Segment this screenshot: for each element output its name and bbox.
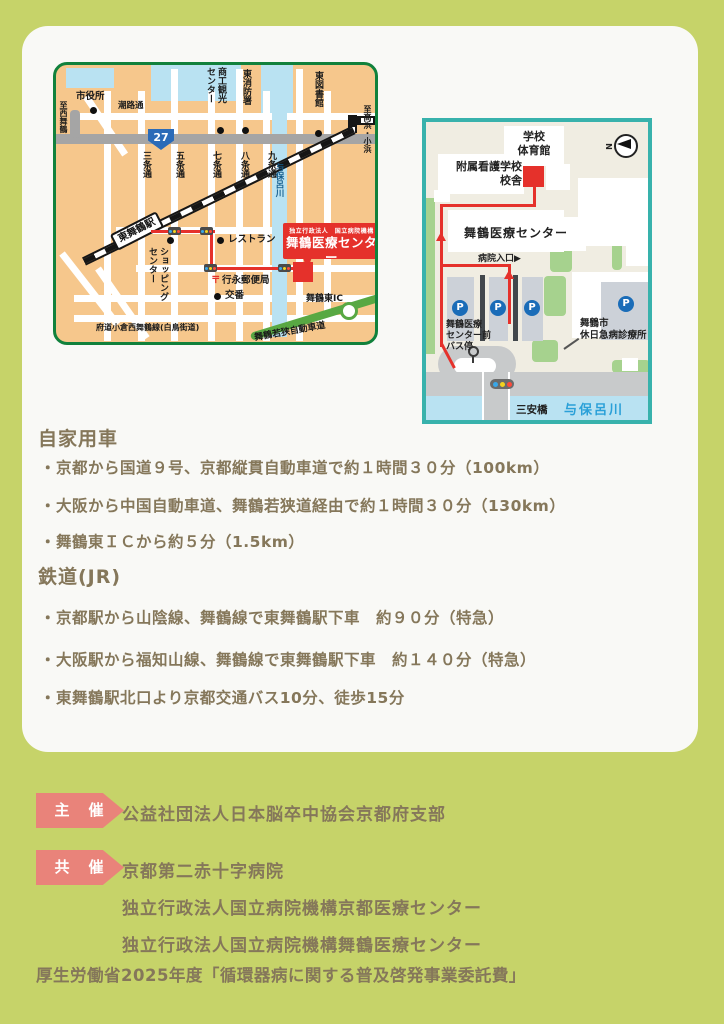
- parking-icon: P: [490, 300, 506, 316]
- compass-needle: [617, 139, 631, 149]
- car-heading: 自家用車: [38, 424, 118, 451]
- building: [622, 358, 638, 371]
- post-office-label: 行永郵便局: [222, 276, 270, 287]
- footer-note: 厚生労働省2025年度「循環器病に関する普及啓発事業委託費」: [36, 962, 526, 986]
- pref-road-label: 府道小倉西舞鶴線(白鳥街道): [96, 323, 199, 332]
- route-arrow-icon: [504, 270, 514, 279]
- cohost-name: 独立行政法人国立病院機構舞鶴医療センター: [122, 931, 482, 956]
- poi-dot-icon: [90, 107, 97, 114]
- building: [546, 164, 570, 190]
- traffic-signal-icon: [204, 264, 217, 272]
- host-name: 公益社団法人日本脳卒中協会京都府支部: [122, 800, 446, 825]
- parking-icon: P: [618, 296, 634, 312]
- river-label: 与保呂川: [564, 399, 624, 418]
- train-item: ・東舞鶴駅北口より京都交通バス10分、徒歩15分: [40, 686, 405, 708]
- library-label: 東図書館: [312, 71, 323, 119]
- ic-label: 舞鶴東IC: [306, 294, 343, 304]
- street: [208, 91, 215, 341]
- police-box-label: 交番: [225, 291, 244, 302]
- street: [263, 91, 270, 341]
- train-item: ・京都駅から山陰線、舞鶴線で東舞鶴駅下車 約９０分（特急）: [40, 606, 504, 628]
- car-item: ・大阪から中国自動車道、舞鶴若狭道経由で約１時間３０分（130km）: [40, 494, 565, 516]
- traffic-signal-icon: [278, 264, 291, 272]
- chamber-label: 商工観光センター: [204, 67, 226, 106]
- street: [104, 91, 111, 341]
- car-item: ・舞鶴東ＩＣから約５分（1.5km）: [40, 530, 304, 552]
- poi-dot-icon: [315, 130, 322, 137]
- nursing-school-label: 附属看護学校 校舎: [442, 160, 522, 188]
- shopping-center-label: ショッピングセンター: [146, 247, 168, 303]
- clinic-pointer-line: [563, 338, 579, 350]
- building: [578, 178, 648, 246]
- cohost-badge: 共 催: [36, 850, 124, 885]
- yohoro-river: [272, 95, 287, 337]
- host-badge: 主 催: [36, 793, 124, 828]
- hospital-entrance-label: 病院入口▶: [478, 251, 521, 264]
- traffic-signal-icon: [200, 227, 213, 235]
- water-area: [151, 65, 241, 101]
- street-name-label: 八条通: [238, 151, 249, 191]
- compass-n-label: N: [605, 143, 614, 150]
- building: [434, 190, 450, 202]
- street: [324, 91, 331, 315]
- city-hall-label: 市役所: [76, 92, 105, 103]
- fire-station-label: 東消防署: [240, 69, 251, 117]
- route-line: [440, 204, 536, 207]
- train-heading: 鉄道(JR): [38, 562, 121, 589]
- route-line: [440, 264, 510, 267]
- car-item: ・京都から国道９号、京都縦貫自動車道で約１時間３０分（100km）: [40, 456, 549, 478]
- bus-stop-label: 舞鶴医療 センター前 バス停: [446, 320, 491, 353]
- clinic-line1: 舞鶴市: [580, 318, 647, 330]
- poi-dot-icon: [217, 237, 224, 244]
- building: [626, 246, 648, 266]
- train-item: ・大阪駅から福知山線、舞鶴線で東舞鶴駅下車 約１４０分（特急）: [40, 648, 536, 670]
- nursing-school-line1: 附属看護学校: [442, 160, 522, 174]
- bus-stop-pole: [472, 355, 474, 363]
- nursing-school-line2: 校舎: [442, 174, 522, 188]
- clinic-label: 舞鶴市 休日急病診療所: [580, 318, 647, 342]
- cohost-name: 独立行政法人国立病院機構京都医療センター: [122, 894, 482, 919]
- route-line: [440, 204, 443, 347]
- street: [74, 113, 378, 120]
- cohost-name: 京都第二赤十字病院: [122, 857, 284, 882]
- medical-center-label: 舞鶴医療センター: [464, 224, 568, 241]
- compass-north-icon: N: [614, 134, 638, 158]
- shioji-street-label: 潮路通: [118, 102, 144, 112]
- to-west-label: 至西舞鶴: [58, 101, 69, 141]
- post-mark: 〒: [211, 276, 221, 287]
- street-name-label: 五条通: [173, 151, 184, 191]
- maizuru-higashi-ic-circle: [340, 302, 358, 320]
- green-patch: [544, 276, 566, 316]
- hospital-callout: 独立行政法人 国立病院機構 舞鶴医療センター: [283, 223, 378, 259]
- street-name-label: 三条通: [140, 151, 151, 191]
- hedge: [422, 198, 435, 354]
- restaurant-label: レストラン: [228, 235, 276, 246]
- clinic-line2: 休日急病診療所: [580, 330, 647, 342]
- traffic-signal-icon: [490, 379, 514, 389]
- campus-map: N P P P P 学校 体育館 附属看護学校 校舎 舞鶴医療センター 病院入口…: [422, 118, 652, 424]
- city-access-map: 27 舞鶴東IC 舞鶴若狭自動車道 東舞鶴駅 至西舞鶴 至高浜・小浜 市役所 潮…: [53, 62, 378, 345]
- green-patch: [532, 340, 558, 362]
- poi-dot-icon: [242, 127, 249, 134]
- route27-road: [70, 110, 80, 138]
- poi-dot-icon: [217, 127, 224, 134]
- callout-org-label: 独立行政法人 国立病院機構: [283, 223, 378, 235]
- traffic-signal-icon: [168, 227, 181, 235]
- gym-marker: [523, 166, 544, 187]
- callout-name-label: 舞鶴医療センター: [283, 235, 378, 265]
- poi-dot-icon: [167, 237, 174, 244]
- water-area: [66, 68, 114, 88]
- gym-label: 学校 体育館: [504, 130, 564, 158]
- river-label: 与保呂川: [273, 163, 284, 207]
- bridge-label: 三安橋: [516, 402, 548, 417]
- parking-icon: P: [452, 300, 468, 316]
- parking-divider: [513, 275, 518, 341]
- main-road: [426, 372, 648, 396]
- parking-icon: P: [524, 300, 540, 316]
- route-arrow-icon: [436, 232, 446, 241]
- street-name-label: 七条通: [210, 151, 221, 191]
- route-line: [533, 186, 536, 206]
- poi-dot-icon: [214, 293, 221, 300]
- to-east-label: 至高浜・小浜: [362, 105, 373, 163]
